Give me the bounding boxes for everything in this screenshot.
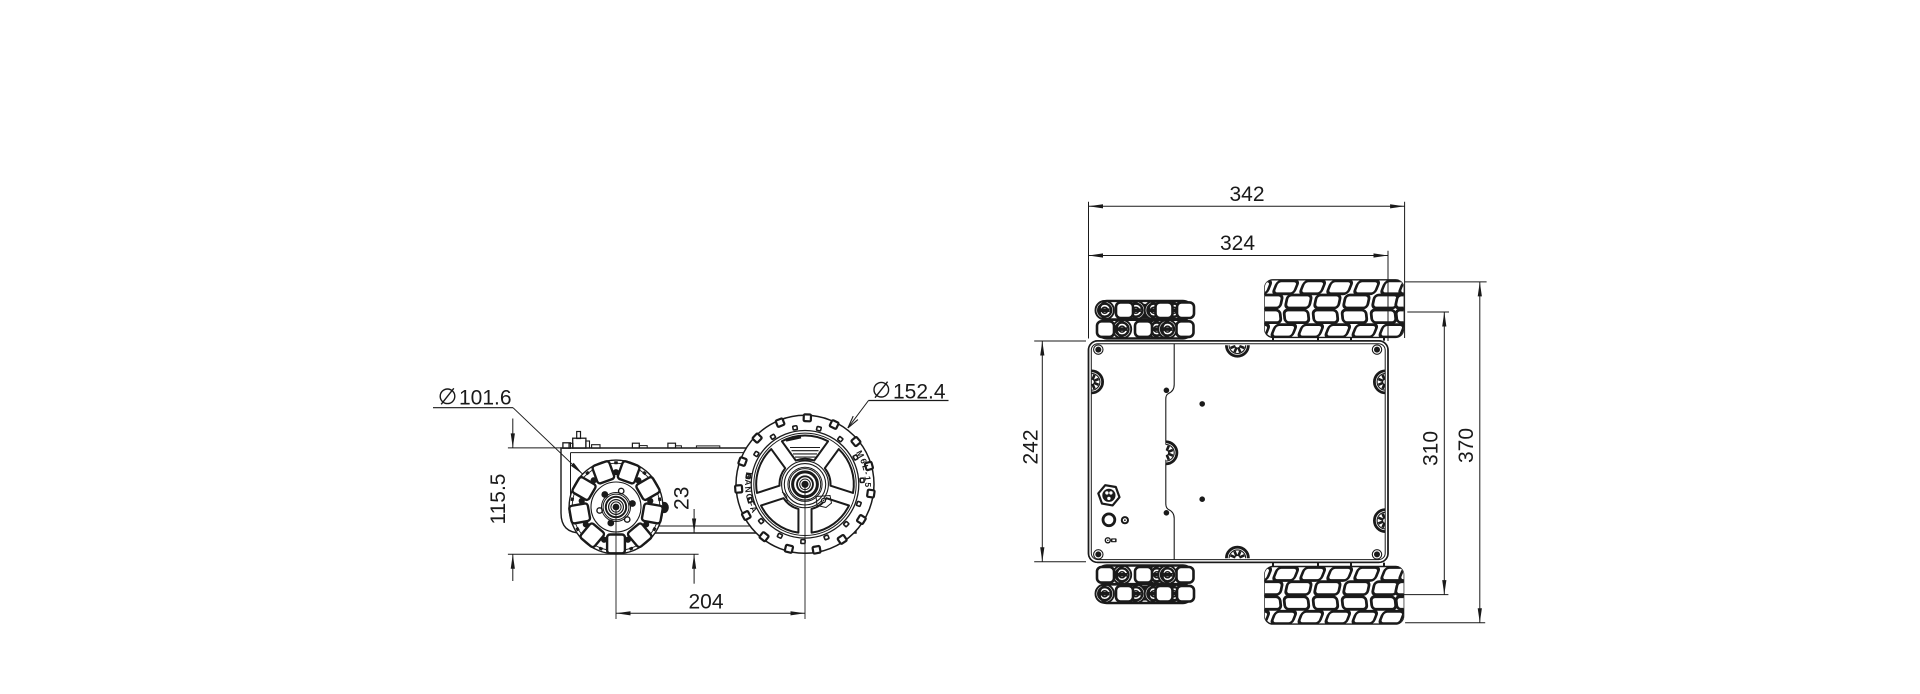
svg-text:152.4: 152.4 (893, 380, 946, 403)
svg-text:115.5: 115.5 (487, 474, 510, 525)
svg-text:324: 324 (1220, 232, 1255, 255)
svg-text:23: 23 (670, 487, 693, 510)
svg-text:310: 310 (1419, 431, 1442, 466)
svg-text:242: 242 (1019, 429, 1042, 464)
svg-text:101.6: 101.6 (459, 387, 512, 410)
svg-text:342: 342 (1229, 183, 1264, 206)
svg-text:370: 370 (1455, 428, 1478, 463)
svg-text:204: 204 (688, 591, 723, 614)
